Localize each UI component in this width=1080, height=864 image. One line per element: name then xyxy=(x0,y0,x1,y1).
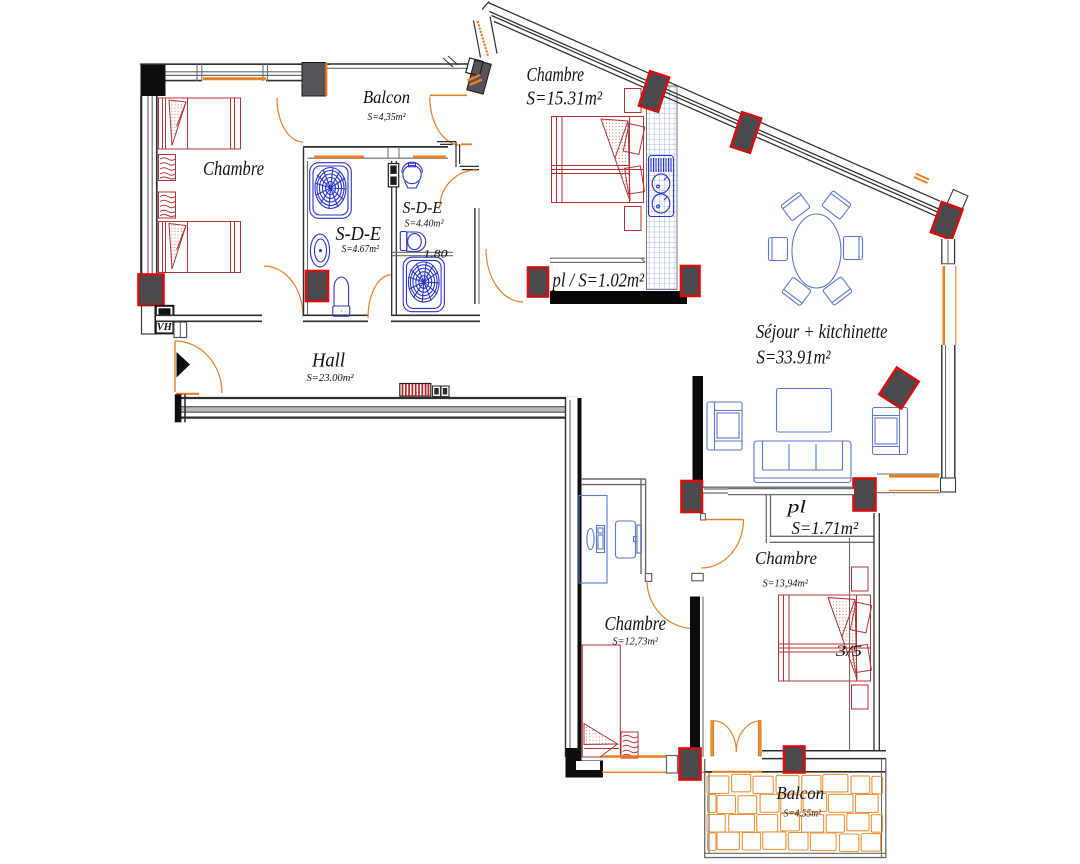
svg-text:S-D-E: S-D-E xyxy=(403,198,443,217)
svg-text:Chambre: Chambre xyxy=(755,548,817,568)
svg-text:S=4.55m²: S=4.55m² xyxy=(784,809,822,820)
svg-text:3/5: 3/5 xyxy=(835,643,862,660)
svg-text:Balcon: Balcon xyxy=(363,87,410,107)
svg-text:1.80: 1.80 xyxy=(424,249,448,261)
svg-text:S-D-E: S-D-E xyxy=(336,223,382,245)
svg-text:S=23.00m²: S=23.00m² xyxy=(307,373,355,384)
svg-text:S=4.40m²: S=4.40m² xyxy=(405,218,445,230)
svg-text:pl: pl xyxy=(785,497,806,517)
svg-text:S=4,35m²: S=4,35m² xyxy=(368,111,407,123)
svg-text:S=4.67m²: S=4.67m² xyxy=(342,244,380,255)
svg-text:VH: VH xyxy=(157,321,172,333)
svg-text:Chambre: Chambre xyxy=(203,158,264,180)
svg-text:Balcon: Balcon xyxy=(777,783,825,803)
svg-text:Hall: Hall xyxy=(311,350,345,372)
svg-text:S=15.31m²: S=15.31m² xyxy=(527,88,603,110)
svg-text:pl / S=1.02m²: pl / S=1.02m² xyxy=(551,270,645,292)
svg-text:S=1.71m²: S=1.71m² xyxy=(792,518,859,538)
svg-text:S=13,94m²: S=13,94m² xyxy=(763,578,809,590)
svg-text:S=33.91m²: S=33.91m² xyxy=(757,347,832,369)
svg-text:S=12,73m²: S=12,73m² xyxy=(613,636,659,648)
svg-text:Chambre: Chambre xyxy=(605,613,667,635)
svg-text:Séjour + kitchinette: Séjour + kitchinette xyxy=(756,321,888,343)
svg-text:Chambre: Chambre xyxy=(527,64,585,86)
